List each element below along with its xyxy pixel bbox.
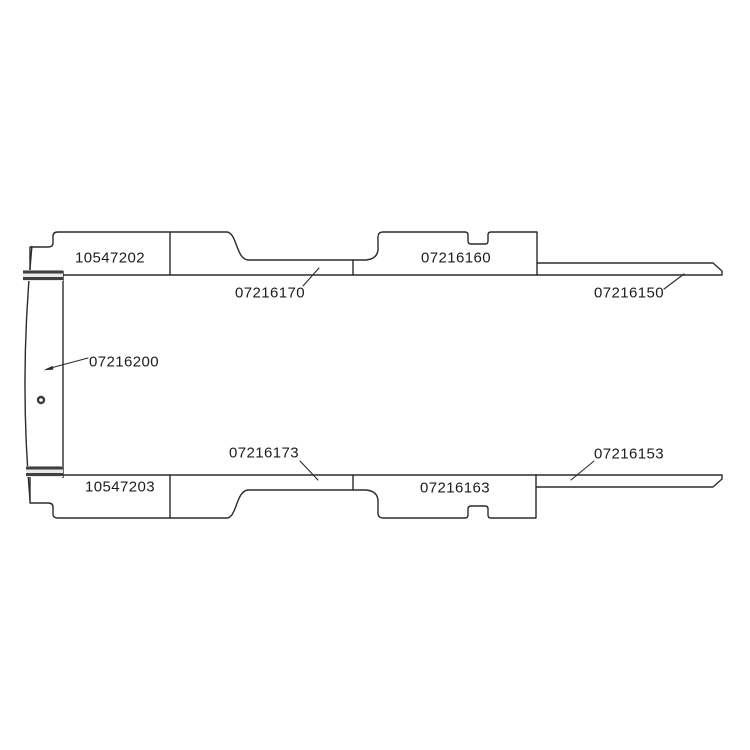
- part-label-bottom-edge-strip: 07216153: [594, 447, 664, 462]
- leader-line-bottom-center-panel: [300, 461, 318, 480]
- part-label-left-end-panel: 07216200: [89, 355, 159, 370]
- part-label-bottom-left-panel: 10547203: [85, 480, 155, 495]
- parts-diagram: 10547202 07216170 07216160 07216150 0721…: [0, 0, 750, 750]
- diagram-linework: [0, 0, 750, 750]
- top-seal-strip: [23, 270, 63, 281]
- leader-line-bottom-edge-strip: [571, 461, 594, 480]
- left-end-panel-curved-edge: [25, 246, 32, 500]
- part-label-top-right-panel: 07216160: [421, 251, 491, 266]
- part-label-top-left-panel: 10547202: [75, 251, 145, 266]
- leader-line-left-end-panel: [47, 358, 88, 369]
- leader-line-top-edge-strip: [664, 274, 684, 289]
- part-label-top-edge-strip: 07216150: [594, 286, 664, 301]
- bottom-seal-strip: [26, 466, 63, 477]
- part-label-top-center-panel: 07216170: [235, 286, 305, 301]
- leader-line-top-center-panel: [303, 268, 319, 286]
- part-label-bottom-center-panel: 07216173: [229, 446, 299, 461]
- part-label-bottom-right-panel: 07216163: [420, 481, 490, 496]
- leader-arrowhead-icon: [44, 366, 54, 370]
- fastener-icon: [38, 397, 44, 403]
